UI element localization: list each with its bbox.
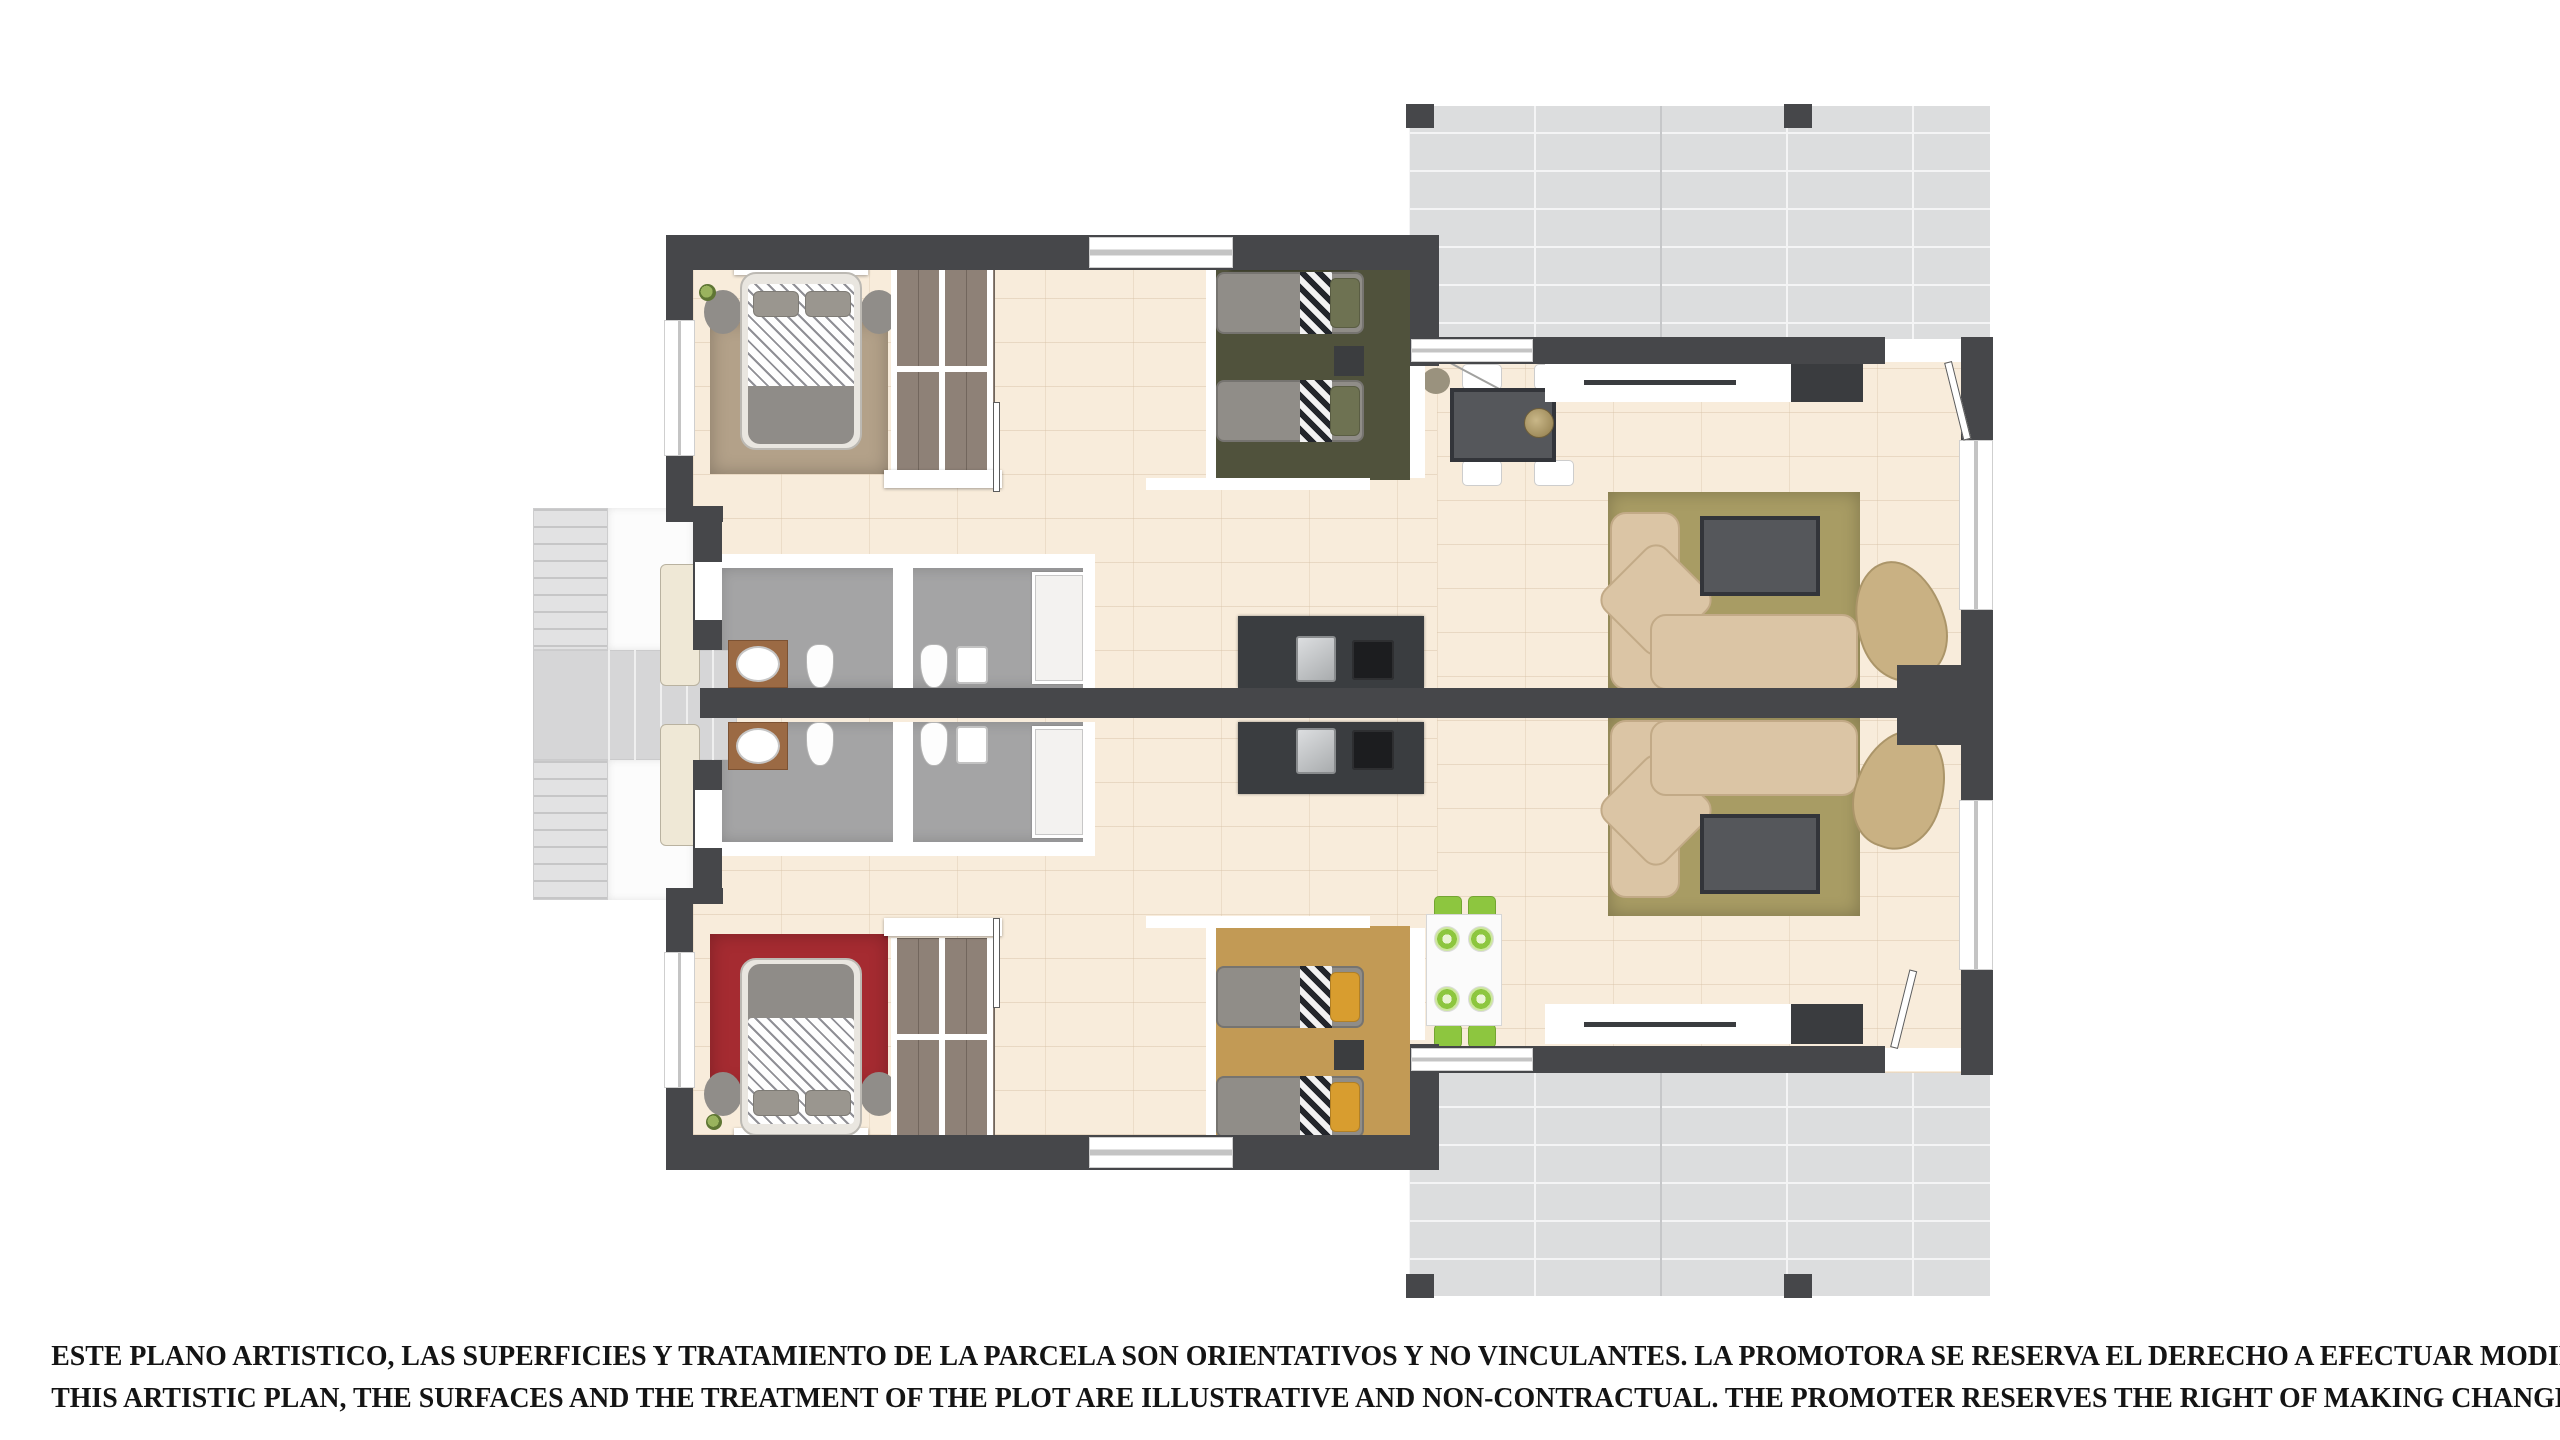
pillow [753,291,799,317]
sink-round [736,646,780,682]
terrace-edge-e-top [1990,101,1995,363]
bath-divider-bottom [893,722,913,842]
window-left-top [664,320,695,456]
pillow [805,1090,851,1116]
plate [1434,926,1460,952]
dining-chair-green [1468,1024,1496,1048]
bedroom2-top-wall-e [1410,366,1425,478]
terrace-pillar [1406,104,1434,128]
window-right-top [1959,440,1993,610]
floor-plan: ESTE PLANO ARTISTICO, LAS SUPERFICIES Y … [0,0,2560,1440]
window-top-wall [1089,237,1233,268]
entry-door-gap-top [695,562,722,620]
terrace-bottom-seam [1660,1048,1662,1298]
sofa-seat-top [1650,614,1858,690]
glazed-door-bottom [1411,1048,1533,1071]
terrace-top-seam [1660,106,1662,362]
kitchen-sink [1296,728,1336,774]
stairs-lower-flight [533,760,608,900]
wall-party-end-block [1897,665,1993,745]
sink-round [736,728,780,764]
bath-wall-east-bottom [1083,722,1095,842]
bath-wall-east-top [1083,568,1095,688]
nightstand-square [1334,346,1364,376]
single-bed-stripe [1300,272,1332,334]
pillow [1330,278,1360,328]
plate [1468,926,1494,952]
shower-tray [1032,572,1086,684]
disclaimer-line-english: THIS ARTISTIC PLAN, THE SURFACES AND THE… [51,1382,2509,1414]
window-bottom-wall [1089,1137,1233,1168]
bath-divider-top [893,568,913,688]
fruit-bowl [1524,408,1554,438]
terrace-bottom-edge-s [1404,1296,1994,1301]
bedroom2-bottom-wall-e [1410,928,1425,1040]
terrace-pillar [1784,1274,1812,1298]
wall-party [700,688,1897,718]
pendant-shade [1422,368,1450,394]
bedroom2-top-wall-s [1146,478,1370,490]
terrace-bottom-floor [1408,1048,1992,1298]
bedroom-doorleaf [993,918,1000,1008]
nightstand [704,1072,742,1116]
bedroom2-bottom-wall-n [1146,916,1370,928]
pillow [1330,1082,1360,1132]
wardrobe-frame [891,1034,993,1040]
terrace-pillar [1406,1274,1434,1298]
sideboard-bottom-dark [1791,1004,1863,1044]
sink-square [956,646,988,684]
bed-master-bottom-blanket [748,964,854,1022]
nightstand-square [1334,1040,1364,1070]
single-bed-stripe [1300,1076,1332,1138]
plant [706,1114,722,1130]
sink-square [956,726,988,764]
wardrobe-frame [891,366,993,372]
dining-chair [1534,460,1574,486]
cooktop [1352,640,1394,680]
pillow [753,1090,799,1116]
bed-master-top-blanket [748,386,854,444]
terrace-top-floor [1408,106,1992,362]
wall-top [666,235,1439,270]
wardrobe-shelf-bottom [884,918,1002,936]
coffee-table-top [1700,516,1820,596]
sideboard-top-dark [1791,362,1863,402]
window-right-bottom [1959,800,1993,970]
plant [699,284,716,301]
plate [1468,986,1494,1012]
terrace-edge-e-bottom [1990,1040,1995,1298]
terrace-pillar [1784,104,1812,128]
disclaimer-line-spanish: ESTE PLANO ARTISTICO, LAS SUPERFICIES Y … [51,1340,2509,1372]
wardrobe-shelf-top [884,470,1002,488]
bedroom2-top-wall-w [1206,268,1216,478]
dining-chair [1462,460,1502,486]
sideboard-handle [1584,380,1736,385]
entry-door-gap-bottom [695,790,722,848]
bedroom2-bottom-wall-w [1206,928,1216,1138]
cooktop [1352,730,1394,770]
pillow [1330,972,1360,1022]
sideboard-handle [1584,1022,1736,1027]
stairs-upper-flight [533,508,608,650]
pillow [1330,386,1360,436]
single-bed-stripe [1300,966,1332,1028]
terrace-door-gap-top [1885,339,1961,362]
single-bed-stripe [1300,380,1332,442]
coffee-table-bottom [1700,814,1820,894]
terrace-door-gap-bottom [1885,1048,1961,1071]
wall-bottom [666,1135,1439,1170]
sofa-seat-bottom [1650,720,1858,796]
plate [1434,986,1460,1012]
bath-wall-south-bottom [693,842,1095,856]
glazed-door-top [1411,339,1533,362]
bedroom-doorleaf [993,402,1000,492]
window-left-bottom [664,952,695,1088]
kitchen-sink [1296,636,1336,682]
bath-wall-north-top [693,554,1095,568]
shower-tray [1032,726,1086,838]
terrace-top-edge-n [1404,101,1994,106]
pillow [805,291,851,317]
